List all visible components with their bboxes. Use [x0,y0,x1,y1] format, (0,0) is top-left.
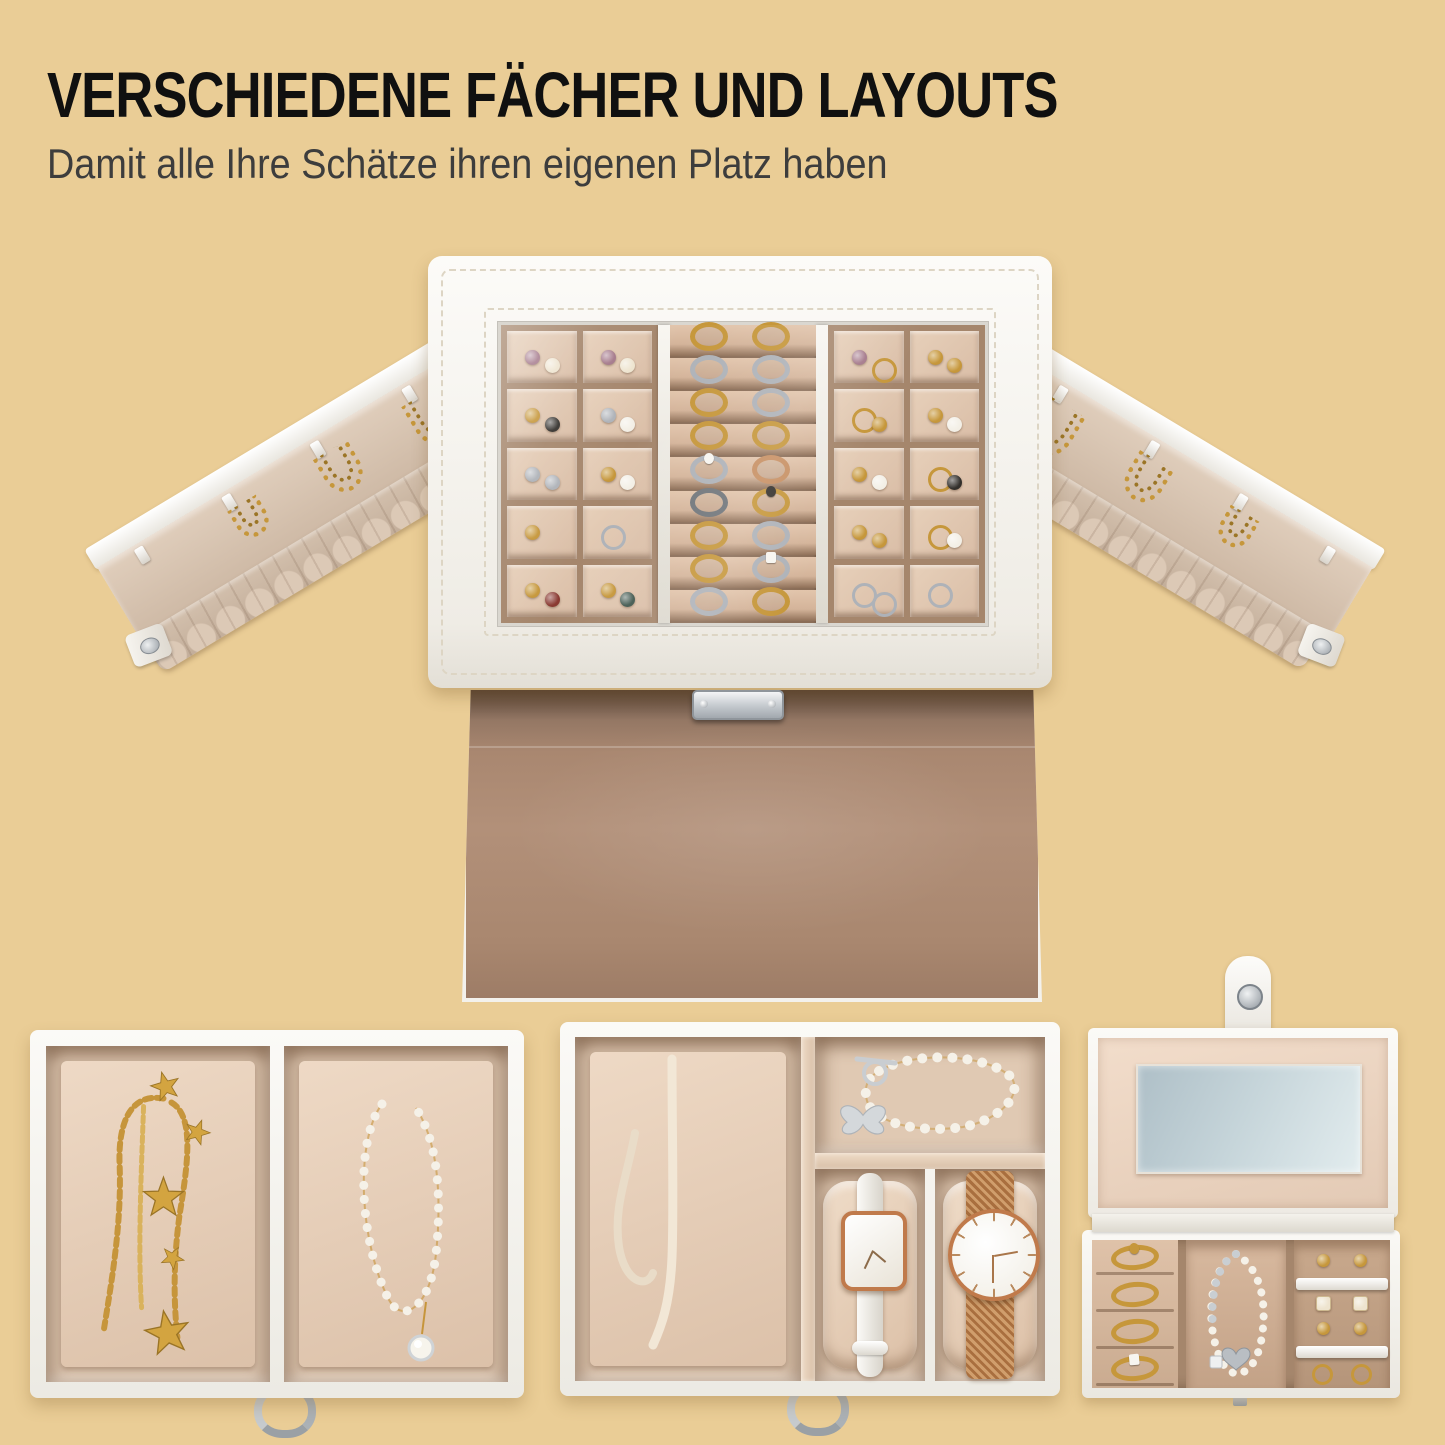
strap-keeper [852,1341,888,1355]
stud-earring-icon [852,525,867,540]
earring-compartment [507,331,577,383]
watch-dial [841,1211,907,1291]
stud-earring-icon [1353,1296,1368,1311]
ring-icon [690,355,728,384]
ring-slot-row [1092,1314,1178,1351]
travel-case-lid [1088,1028,1398,1218]
stud-earring-icon [525,525,540,540]
earring-bar-section [1294,1240,1390,1388]
earring-grid-left [501,325,658,623]
square-bead [1210,1356,1222,1368]
stud-earring-icon [620,358,635,373]
earring-compartment [507,389,577,441]
earring-compartment [583,506,653,558]
ring-icon [752,322,790,351]
stud-earring-icon [620,417,635,432]
glass-lid-window [498,322,988,626]
ring-icon [752,521,790,550]
stud-earring-icon [525,408,540,423]
gold-chain-necklace [46,1046,270,1382]
window-divider [658,325,670,623]
earring-compartment [507,448,577,500]
stud-earring-icon [947,358,962,373]
earring-compartment [583,331,653,383]
earring-compartment [834,506,904,558]
satin-ribbon [575,1037,801,1381]
metal-clasp [692,690,784,720]
ring-roll-row [670,557,816,588]
ring-icon [690,554,728,583]
tray-interior [575,1037,1045,1381]
ring-slot-row [1092,1351,1178,1388]
ring-slot-row [1092,1240,1178,1277]
watch-slot-left [815,1169,925,1381]
ring-icon [690,488,728,517]
stud-earring-icon [620,475,635,490]
earring-compartment [834,565,904,617]
stud-earring-icon [1354,1254,1367,1267]
ring-icon [752,554,790,583]
stud-earring-icon [872,533,887,548]
hoop-earring-icon [872,592,897,617]
hoop-earring-icon [1351,1364,1372,1385]
stud-earring-icon [545,475,560,490]
ring-icon [1110,1317,1160,1346]
stud-earring-icon [1354,1322,1367,1335]
stud-earring-icon [928,350,943,365]
earring-compartment [834,331,904,383]
ring-slot-section [1092,1240,1178,1388]
stud-earring-icon [620,592,635,607]
pearl-heart-bracelet [1186,1240,1286,1388]
earring-grid-right [828,325,985,623]
ring-icon [690,388,728,417]
stud-earring-icon [852,467,867,482]
pearl-necklace [284,1046,508,1382]
earring-compartment [507,506,577,558]
stud-earring-icon [525,467,540,482]
gold-chain-icon [1117,450,1175,510]
ring-icon [690,521,728,550]
earring-compartment [834,448,904,500]
hoop-earring-icon [601,525,626,550]
stud-earring-icon [1317,1254,1330,1267]
ring-icon [1110,1243,1160,1272]
velvet-surface [466,690,1038,998]
hoop-earring-icon [872,358,897,383]
necklace-compartment-right [284,1046,508,1382]
stud-earring-icon [525,583,540,598]
ring-slot-row [1092,1277,1178,1314]
bracelet-section [1186,1240,1286,1388]
ring-icon [752,587,790,616]
necklace-tray [30,1030,524,1398]
earring-compartment [583,448,653,500]
stud-earring-icon [545,592,560,607]
ribbon-compartment [575,1037,801,1381]
ring-icon [752,455,790,484]
ring-icon [690,421,728,450]
ring-roll-row [670,524,816,555]
pearl-pendant [409,1336,433,1360]
stud-earring-icon [928,408,943,423]
earring-compartment [507,565,577,617]
stud-row [1294,1296,1390,1312]
earring-bar [1296,1346,1388,1358]
ring-roll-row [670,325,816,356]
travel-case-hinge [1092,1214,1394,1232]
butterfly-charm [841,1106,886,1134]
stud-earring-icon [1317,1322,1330,1335]
stud-earring-icon [601,408,616,423]
watch-hand [992,1255,994,1283]
watch-slot-right [935,1169,1045,1381]
lid-velvet [1098,1038,1388,1208]
ring-icon [752,421,790,450]
ring-roll-row [670,358,816,389]
necklace-hook-icon [133,545,150,565]
earring-compartment [910,565,980,617]
earring-compartment [910,389,980,441]
ring-roll-row [670,391,816,422]
ring-icon [690,455,728,484]
watch-tray [560,1022,1060,1396]
earring-bar [1296,1278,1388,1290]
velvet-lid-panel [462,690,1042,1002]
earring-compartment [910,448,980,500]
earring-compartment [583,565,653,617]
stud-earring-icon [872,417,887,432]
stud-earring-icon [601,467,616,482]
stud-earring-icon [947,475,962,490]
hoop-earring-icon [928,583,953,608]
tray-interior [46,1046,508,1382]
earring-compartment [834,389,904,441]
earring-compartment [583,389,653,441]
stud-earring-icon [947,533,962,548]
ring-icon [690,322,728,351]
stud-earring-icon [545,417,560,432]
ring-roll-row [670,424,816,455]
mirror [1136,1064,1362,1174]
stud-earring-icon [601,350,616,365]
travel-case-base [1082,1230,1400,1398]
gold-chain-icon [1212,504,1260,553]
gem-icon [1129,1243,1140,1255]
travel-case-snap-tab [1225,956,1271,1036]
stud-earring-icon [601,583,616,598]
subheadline: Damit alle Ihre Schätze ihren eigenen Pl… [47,140,888,188]
window-divider [816,325,828,623]
case-interior [1092,1240,1390,1388]
product-marketing-image: VERSCHIEDENE FÄCHER UND LAYOUTS Damit al… [0,0,1445,1445]
gem-icon [704,453,714,464]
gem-icon [766,486,776,497]
ring-icon [1110,1354,1160,1383]
headline: VERSCHIEDENE FÄCHER UND LAYOUTS [47,58,1058,132]
ring-roll-column [670,325,816,623]
snap-stud-icon [1310,635,1334,657]
stud-row [1294,1254,1390,1270]
stud-earring-icon [872,475,887,490]
rose-gold-watch [935,1169,1045,1381]
gem-icon [1129,1354,1140,1366]
earring-compartment [910,331,980,383]
ring-icon [752,488,790,517]
ring-icon [752,388,790,417]
tray-divider [801,1037,815,1381]
earring-compartment [910,506,980,558]
watch-hand [873,1251,887,1263]
ring-roll-row [670,491,816,522]
watch-pillow-row [815,1169,1045,1381]
stud-earring-icon [545,358,560,373]
jewelry-box-top-tray [428,256,1052,688]
stud-earring-icon [525,350,540,365]
stud-earring-icon [852,350,867,365]
snap-stud-icon [138,635,162,657]
pearl-bracelet [815,1037,1045,1153]
stud-earring-icon [947,417,962,432]
tray-divider [815,1153,1045,1169]
necklace-hook-icon [1319,545,1336,565]
bracelet-compartment [815,1037,1045,1153]
watch-hand [864,1250,874,1269]
ring-roll-row [670,457,816,488]
necklace-compartment-left [46,1046,270,1382]
stud-earring-icon [1316,1296,1331,1311]
ring-roll-row [670,590,816,621]
ring-icon [1110,1280,1160,1309]
stud-row [1294,1364,1390,1380]
watch-hand [994,1251,1018,1257]
ring-icon [752,355,790,384]
white-leather-watch [815,1169,925,1381]
watch-dial [948,1209,1040,1301]
hoop-earring-icon [1312,1364,1333,1385]
stud-row [1294,1322,1390,1338]
snap-button-icon [1237,984,1263,1010]
ring-icon [690,587,728,616]
gem-icon [766,552,776,563]
